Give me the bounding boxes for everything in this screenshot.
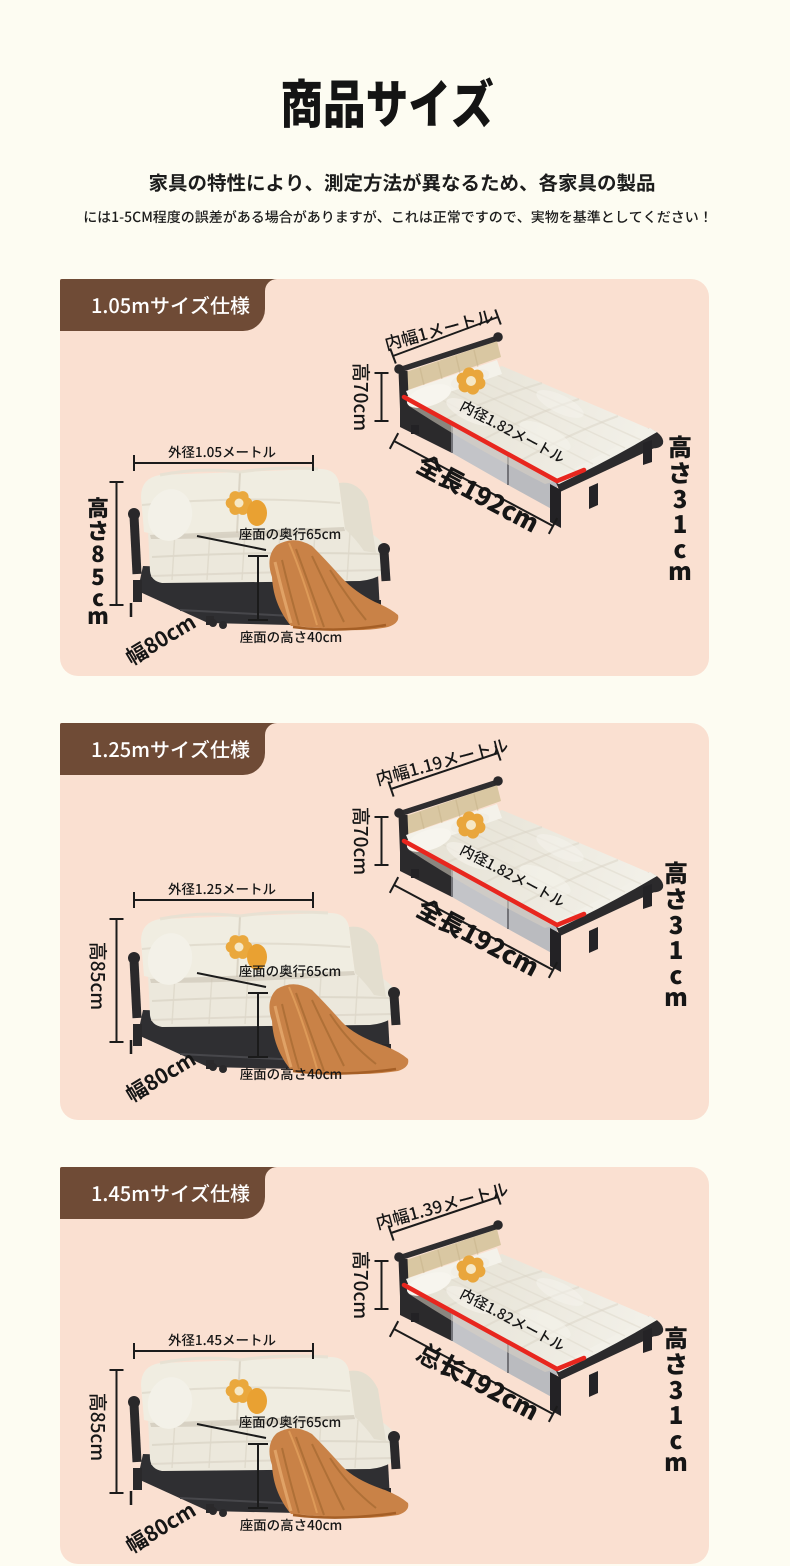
svg-text:座面の奥行65cm: 座面の奥行65cm	[239, 1411, 342, 1431]
svg-text:高70cm: 高70cm	[348, 807, 375, 875]
svg-text:m: m	[664, 1443, 688, 1478]
svg-text:高85cm: 高85cm	[85, 1393, 112, 1461]
svg-text:m: m	[664, 978, 688, 1013]
svg-text:内幅1.19メートル: 内幅1.19メートル	[373, 731, 511, 790]
svg-text:高70cm: 高70cm	[348, 1251, 375, 1319]
svg-text:座面の高さ40cm: 座面の高さ40cm	[240, 626, 343, 646]
svg-text:内幅1.39メートル: 内幅1.39メートル	[373, 1175, 511, 1234]
svg-text:外径1.45メートル: 外径1.45メートル	[168, 1329, 276, 1349]
svg-text:外径1.25メートル: 外径1.25メートル	[168, 878, 276, 898]
svg-text:外径1.05メートル: 外径1.05メートル	[168, 441, 276, 461]
svg-text:座面の奥行65cm: 座面の奥行65cm	[239, 960, 342, 980]
svg-text:m: m	[87, 599, 109, 631]
svg-text:座面の高さ40cm: 座面の高さ40cm	[240, 1514, 343, 1534]
svg-text:高70cm: 高70cm	[348, 363, 375, 431]
svg-text:高85cm: 高85cm	[85, 942, 112, 1010]
svg-text:座面の奥行65cm: 座面の奥行65cm	[239, 523, 342, 543]
svg-text:座面の高さ40cm: 座面の高さ40cm	[240, 1063, 343, 1083]
svg-text:m: m	[668, 552, 692, 587]
